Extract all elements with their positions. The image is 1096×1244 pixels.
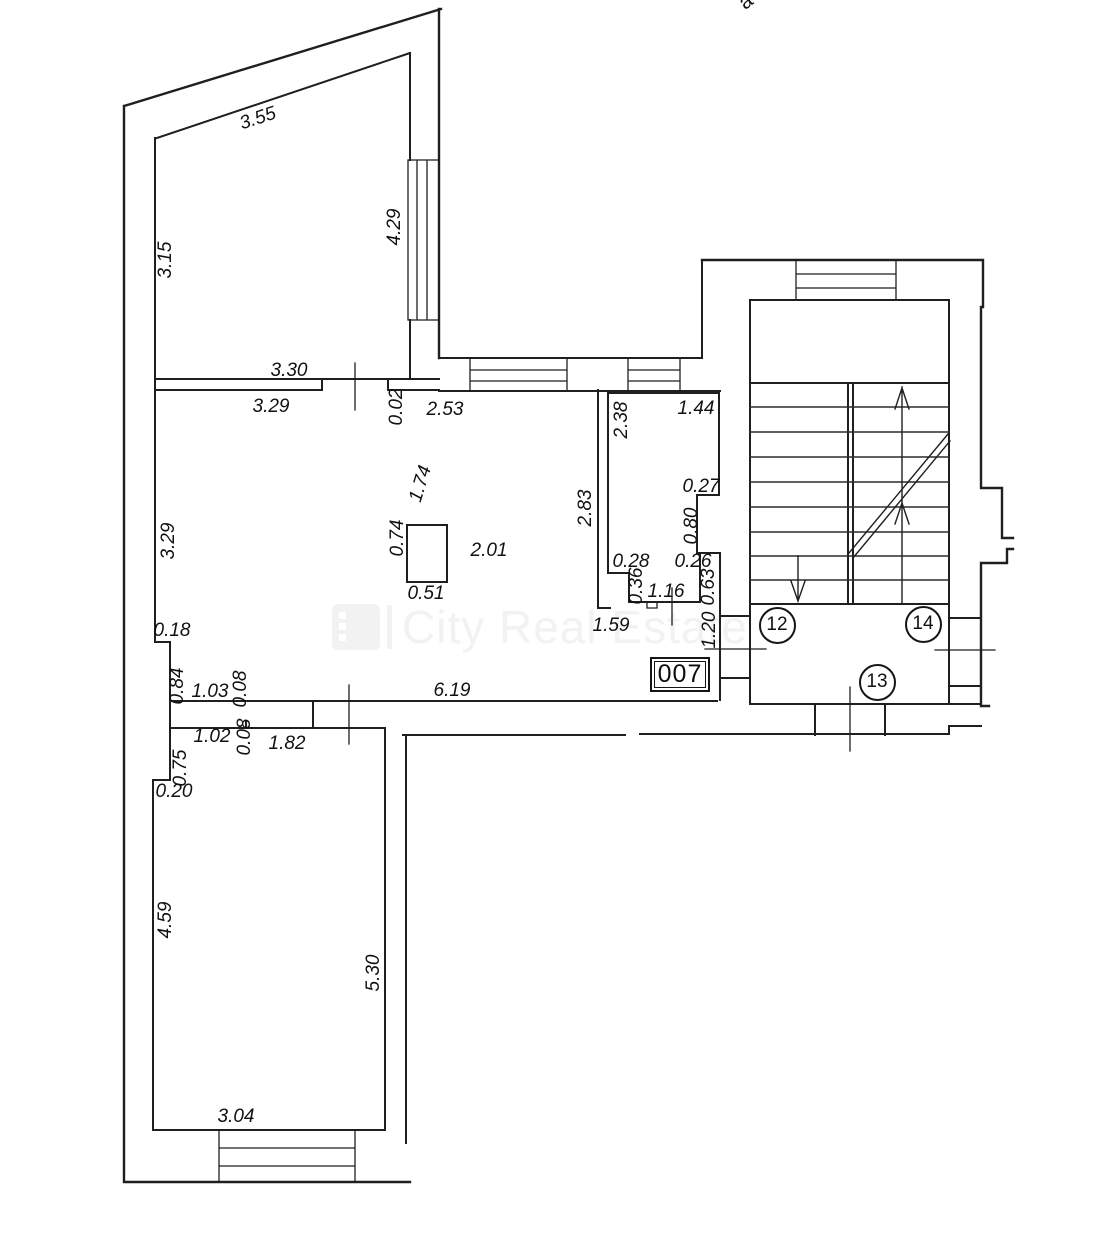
column <box>407 525 447 582</box>
dimension-label: 1.02 <box>194 726 231 748</box>
dimension-label: 3.15 <box>155 242 177 279</box>
dimension-label: 0.08 <box>234 719 256 756</box>
stair-circle-label: 13 <box>859 664 896 701</box>
dimension-label: 1.03 <box>192 681 229 703</box>
room-number-plate: 007 <box>650 657 710 692</box>
floor-plan: City Real Estate <box>0 0 1096 1244</box>
dimension-label: 0.08 <box>230 671 252 708</box>
dimension-label: 1.59 <box>593 615 630 637</box>
dimension-label: 3.29 <box>253 396 290 418</box>
dimension-label: 0.63 <box>698 569 720 606</box>
dimension-label: 0.74 <box>387 520 409 557</box>
dimension-label: 6.19 <box>434 680 471 702</box>
dimension-label: 0.36 <box>626 568 648 605</box>
dimension-label: 2.38 <box>611 402 633 439</box>
dimension-label: 0.02 <box>386 389 408 426</box>
dimension-label: 2.83 <box>575 490 597 527</box>
dimension-label: 0.84 <box>167 668 189 705</box>
dimension-label: 4.29 <box>384 209 406 246</box>
dimension-label: 3.30 <box>271 360 308 382</box>
outer-walls <box>124 9 1013 1182</box>
dimension-label: 1.16 <box>648 581 685 603</box>
dimension-label: 1.20 <box>699 612 721 649</box>
dimension-label: 3.29 <box>158 523 180 560</box>
stair-circle-label: 14 <box>905 606 942 643</box>
dimension-label: 1.44 <box>678 398 715 420</box>
windows <box>219 160 896 1182</box>
dimension-label: 0.51 <box>408 583 445 605</box>
dimension-label: 0.20 <box>156 781 193 803</box>
stair-treads <box>750 407 949 580</box>
interior-walls <box>153 53 981 1143</box>
stair-circle-label: 12 <box>759 607 796 644</box>
dimension-label: 2.53 <box>427 399 464 421</box>
dimension-label: 0.27 <box>683 476 720 498</box>
dimension-label: 1.82 <box>269 733 306 755</box>
room-number-label: 007 <box>654 661 706 688</box>
dimension-label: 3.04 <box>218 1106 255 1128</box>
dimension-label: 5.30 <box>363 955 385 992</box>
stair-direction-arrows <box>791 387 950 604</box>
dimension-label: 0.80 <box>681 508 703 545</box>
dimension-label: 4.59 <box>155 902 177 939</box>
dimension-label: 2.01 <box>471 540 508 562</box>
dimension-label: 0.18 <box>154 620 191 642</box>
